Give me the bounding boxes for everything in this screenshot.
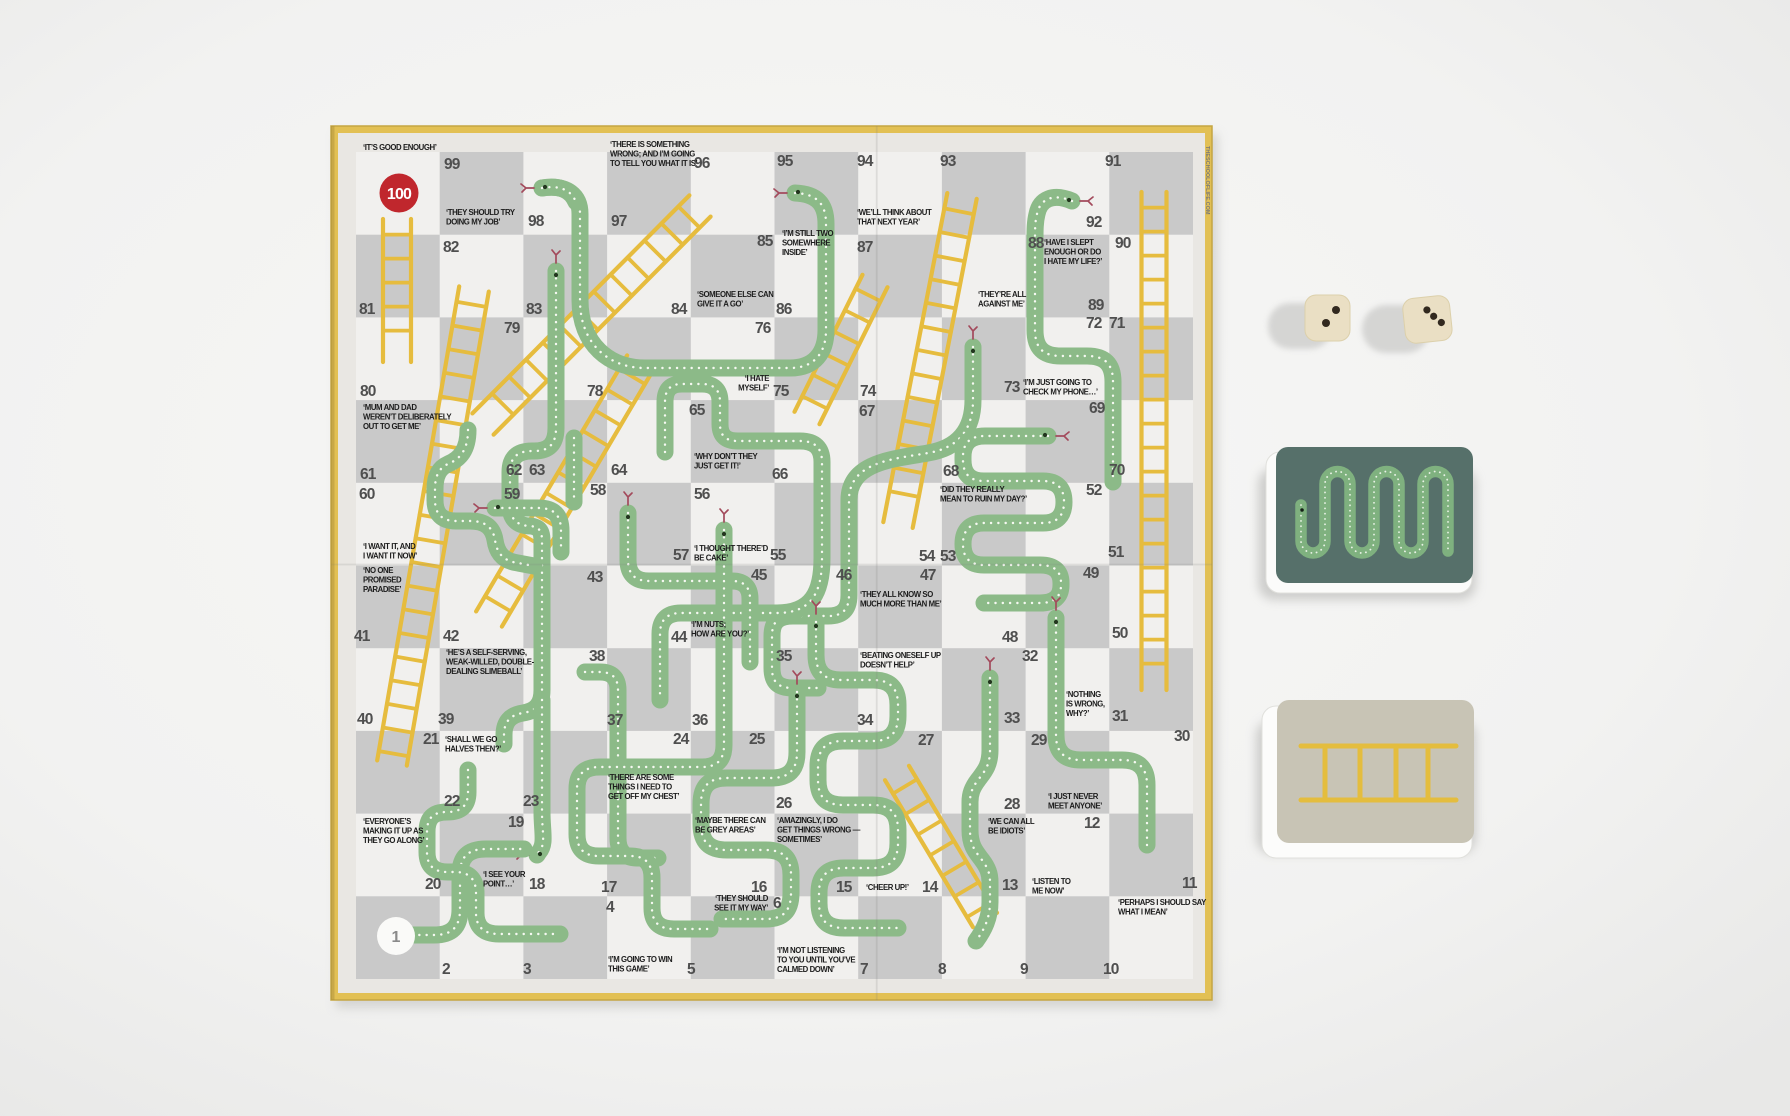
svg-text:‘THEY’RE ALLAGAINST ME’: ‘THEY’RE ALLAGAINST ME’ (978, 290, 1027, 308)
svg-text:‘I JUST NEVERMEET ANYONE’: ‘I JUST NEVERMEET ANYONE’ (1048, 792, 1102, 810)
svg-text:82: 82 (443, 239, 459, 256)
svg-text:2: 2 (442, 961, 450, 978)
svg-text:49: 49 (1083, 565, 1100, 582)
svg-text:40: 40 (357, 711, 373, 728)
svg-text:20: 20 (425, 876, 441, 893)
svg-text:42: 42 (443, 628, 459, 645)
svg-text:98: 98 (528, 213, 545, 230)
svg-text:25: 25 (749, 731, 766, 748)
svg-text:8: 8 (938, 961, 947, 978)
svg-text:37: 37 (607, 712, 623, 729)
svg-text:21: 21 (423, 731, 440, 748)
svg-text:91: 91 (1105, 153, 1122, 170)
svg-text:‘I WANT IT, ANDI WANT IT NOW’: ‘I WANT IT, ANDI WANT IT NOW’ (363, 542, 417, 560)
svg-text:15: 15 (836, 879, 853, 896)
svg-text:‘CHEER UP!’: ‘CHEER UP!’ (866, 883, 909, 892)
svg-text:‘THEY ALL KNOW SOMUCH MORE THA: ‘THEY ALL KNOW SOMUCH MORE THAN ME’ (860, 590, 941, 608)
svg-text:35: 35 (776, 648, 793, 665)
svg-text:18: 18 (529, 876, 546, 893)
svg-text:58: 58 (590, 482, 607, 499)
svg-text:7: 7 (860, 961, 868, 978)
svg-text:48: 48 (1002, 629, 1019, 646)
svg-text:85: 85 (757, 233, 774, 250)
svg-text:100: 100 (387, 186, 412, 203)
svg-text:89: 89 (1088, 297, 1105, 314)
svg-text:76: 76 (755, 320, 772, 337)
svg-text:‘SHALL WE GOHALVES THEN?’: ‘SHALL WE GOHALVES THEN?’ (445, 735, 501, 753)
svg-text:94: 94 (857, 153, 874, 170)
svg-text:1: 1 (392, 929, 401, 946)
svg-text:80: 80 (360, 383, 376, 400)
svg-text:5: 5 (687, 961, 696, 978)
svg-text:6: 6 (773, 895, 782, 912)
svg-text:56: 56 (694, 486, 711, 503)
svg-text:THESCHOOLOFLIFE.COM: THESCHOOLOFLIFE.COM (1204, 146, 1210, 215)
svg-text:43: 43 (587, 569, 604, 586)
svg-text:52: 52 (1086, 482, 1102, 499)
svg-text:92: 92 (1086, 214, 1102, 231)
svg-text:87: 87 (857, 239, 873, 256)
svg-text:86: 86 (776, 301, 793, 318)
svg-text:51: 51 (1108, 544, 1125, 561)
svg-text:32: 32 (1022, 648, 1038, 665)
svg-text:22: 22 (444, 793, 460, 810)
svg-text:45: 45 (751, 567, 768, 584)
svg-text:24: 24 (673, 731, 690, 748)
svg-text:36: 36 (692, 712, 709, 729)
svg-text:66: 66 (772, 466, 789, 483)
svg-text:70: 70 (1109, 462, 1125, 479)
svg-text:60: 60 (359, 486, 375, 503)
svg-text:71: 71 (1109, 315, 1126, 332)
svg-text:3: 3 (523, 961, 532, 978)
svg-text:64: 64 (611, 462, 628, 479)
svg-text:59: 59 (504, 486, 521, 503)
svg-text:10: 10 (1103, 961, 1119, 978)
svg-text:74: 74 (860, 383, 877, 400)
svg-text:‘IT’S GOOD ENOUGH’: ‘IT’S GOOD ENOUGH’ (363, 143, 437, 152)
svg-text:39: 39 (438, 711, 455, 728)
svg-text:19: 19 (508, 814, 525, 831)
svg-text:27: 27 (918, 732, 934, 749)
svg-text:63: 63 (529, 462, 546, 479)
svg-text:46: 46 (836, 567, 853, 584)
svg-text:68: 68 (943, 463, 960, 480)
svg-text:81: 81 (359, 301, 376, 318)
svg-text:83: 83 (526, 301, 543, 318)
svg-text:44: 44 (671, 629, 688, 646)
svg-text:‘THEY SHOULDSEE IT MY WAY’: ‘THEY SHOULDSEE IT MY WAY’ (714, 894, 769, 912)
svg-text:53: 53 (940, 548, 957, 565)
svg-text:‘HE’S A SELF-SERVING,WEAK-WILL: ‘HE’S A SELF-SERVING,WEAK-WILLED, DOUBLE… (446, 648, 535, 676)
svg-text:95: 95 (777, 153, 794, 170)
svg-text:65: 65 (689, 402, 706, 419)
svg-text:13: 13 (1002, 877, 1019, 894)
svg-text:‘THERE ARE SOMETHINGS I NEED T: ‘THERE ARE SOMETHINGS I NEED TOGET OFF M… (608, 773, 679, 801)
svg-text:75: 75 (773, 383, 790, 400)
svg-text:26: 26 (776, 795, 793, 812)
svg-text:99: 99 (444, 156, 461, 173)
svg-text:9: 9 (1020, 961, 1029, 978)
svg-text:62: 62 (506, 462, 522, 479)
svg-text:30: 30 (1174, 728, 1190, 745)
svg-text:97: 97 (611, 213, 627, 230)
svg-text:‘THERE IS SOMETHINGWRONG; AND: ‘THERE IS SOMETHINGWRONG; AND I’M GOINGT… (610, 140, 697, 168)
svg-text:67: 67 (859, 403, 875, 420)
svg-text:93: 93 (940, 153, 957, 170)
svg-text:61: 61 (360, 466, 377, 483)
svg-text:34: 34 (857, 712, 874, 729)
svg-text:17: 17 (601, 879, 617, 896)
svg-text:57: 57 (673, 547, 689, 564)
svg-text:38: 38 (589, 648, 606, 665)
svg-text:55: 55 (770, 547, 787, 564)
svg-text:12: 12 (1084, 815, 1100, 832)
svg-text:14: 14 (922, 879, 939, 896)
svg-text:28: 28 (1004, 796, 1021, 813)
svg-text:11: 11 (1182, 875, 1198, 892)
svg-text:41: 41 (354, 628, 371, 645)
svg-text:50: 50 (1112, 625, 1128, 642)
svg-text:4: 4 (606, 899, 615, 916)
svg-text:79: 79 (504, 320, 521, 337)
svg-text:88: 88 (1028, 235, 1045, 252)
svg-text:84: 84 (671, 301, 688, 318)
svg-text:73: 73 (1004, 379, 1021, 396)
svg-text:54: 54 (919, 548, 936, 565)
svg-text:33: 33 (1004, 710, 1021, 727)
svg-text:29: 29 (1031, 732, 1048, 749)
svg-text:90: 90 (1115, 235, 1131, 252)
svg-text:47: 47 (920, 567, 936, 584)
svg-text:69: 69 (1089, 400, 1106, 417)
svg-text:72: 72 (1086, 315, 1102, 332)
svg-text:78: 78 (587, 383, 604, 400)
svg-text:‘I’M JUST GOING TOCHECK MY PHO: ‘I’M JUST GOING TOCHECK MY PHONE…’ (1023, 378, 1098, 396)
svg-text:31: 31 (1112, 708, 1129, 725)
svg-text:23: 23 (523, 793, 540, 810)
